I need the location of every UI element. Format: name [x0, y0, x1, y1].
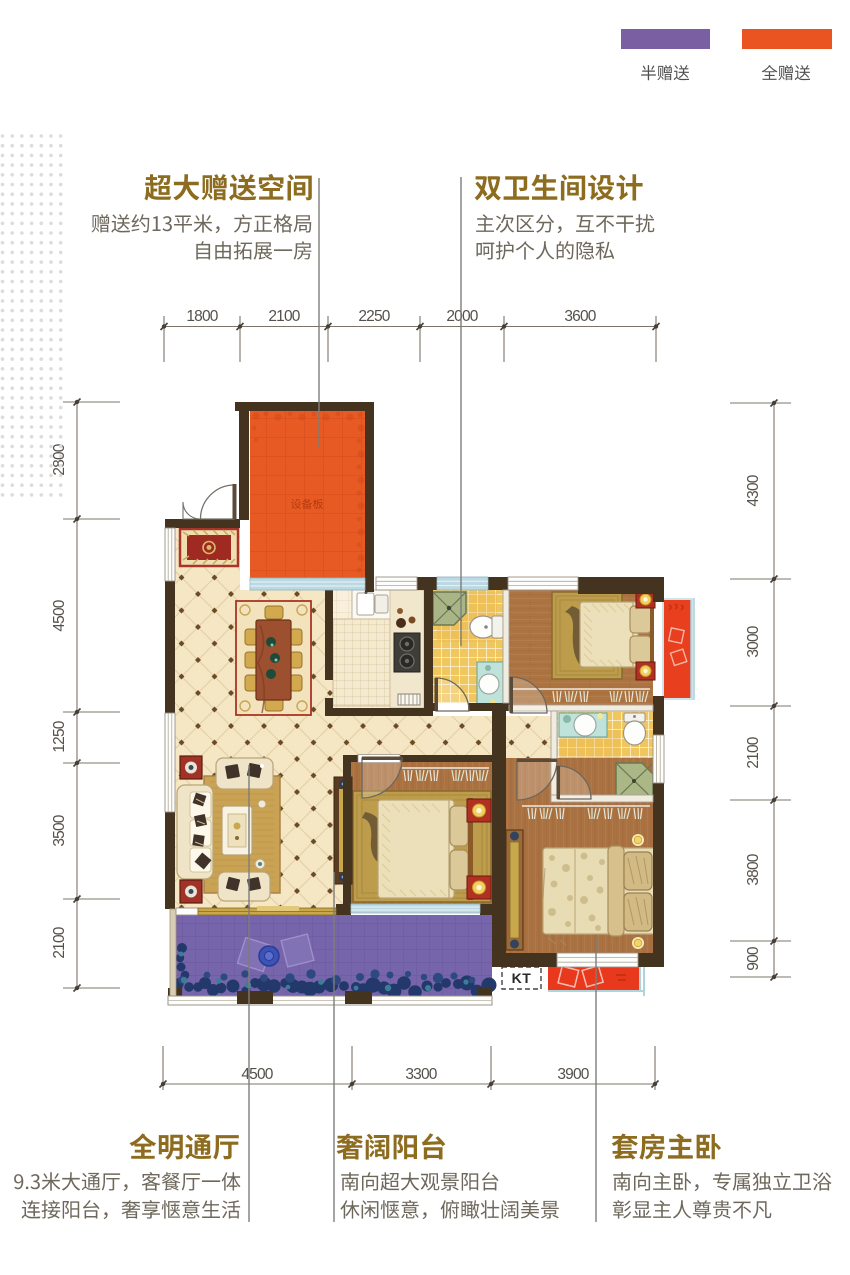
svg-text:4500: 4500 [51, 599, 68, 631]
svg-text:3500: 3500 [51, 814, 68, 846]
svg-text:2100: 2100 [268, 308, 300, 325]
svg-text:3900: 3900 [557, 1066, 589, 1083]
svg-text:3300: 3300 [405, 1066, 437, 1083]
svg-text:3800: 3800 [745, 853, 762, 885]
svg-text:2250: 2250 [358, 308, 390, 325]
svg-text:1250: 1250 [51, 720, 68, 752]
svg-text:4300: 4300 [745, 474, 762, 506]
svg-text:3000: 3000 [745, 625, 762, 657]
svg-text:3600: 3600 [564, 308, 596, 325]
svg-text:2800: 2800 [51, 443, 68, 475]
svg-text:4500: 4500 [241, 1066, 273, 1083]
svg-text:KT: KT [512, 970, 532, 986]
svg-text:2100: 2100 [745, 736, 762, 768]
svg-text:2100: 2100 [51, 926, 68, 958]
svg-text:2000: 2000 [446, 308, 478, 325]
svg-text:900: 900 [745, 946, 762, 971]
svg-text:1800: 1800 [186, 308, 218, 325]
